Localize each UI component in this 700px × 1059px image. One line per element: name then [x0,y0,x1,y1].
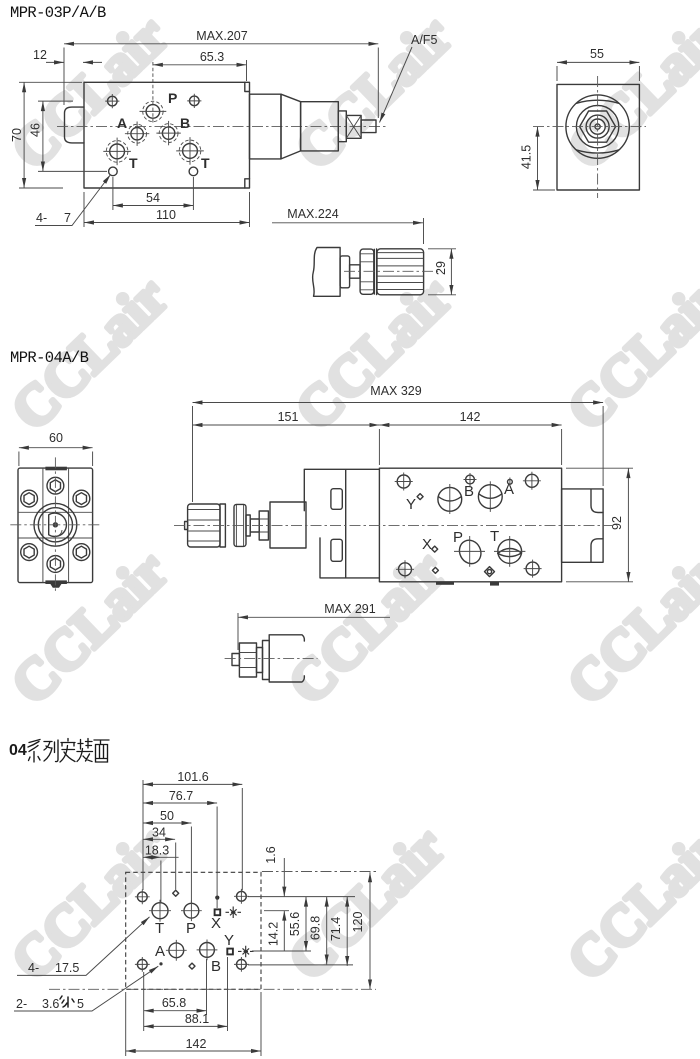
svg-text:18.3: 18.3 [145,844,169,858]
svg-text:60: 60 [49,431,63,445]
svg-text:1.6: 1.6 [264,846,278,863]
svg-text:Y: Y [406,496,416,513]
svg-text:142: 142 [460,410,481,424]
svg-text:92: 92 [610,516,624,530]
svg-text:A: A [117,115,127,131]
svg-text:P: P [168,90,177,106]
svg-text:A/F5: A/F5 [411,33,437,47]
svg-text:151: 151 [278,410,299,424]
svg-text:MPR-03P/A/B: MPR-03P/A/B [10,4,106,22]
svg-text:CCLair: CCLair [556,4,700,181]
svg-text:04: 04 [9,742,27,759]
svg-text:65.8: 65.8 [162,996,186,1010]
svg-text:X: X [211,915,221,932]
svg-text:MPR-04A/B: MPR-04A/B [10,349,89,367]
svg-text:A: A [155,943,165,960]
svg-text:71.4: 71.4 [329,917,343,941]
svg-text:MAX 291: MAX 291 [324,602,375,616]
svg-text:CCLair: CCLair [277,815,457,992]
svg-text:12: 12 [33,48,47,62]
svg-text:55.6: 55.6 [288,912,302,936]
svg-text:29: 29 [434,261,448,275]
svg-text:50: 50 [160,809,174,823]
svg-text:110: 110 [156,208,176,222]
svg-text:76.7: 76.7 [169,789,193,803]
svg-text:55: 55 [590,47,604,61]
svg-text:MAX.207: MAX.207 [196,29,247,43]
svg-text:T: T [129,155,138,171]
svg-text:46: 46 [29,123,43,137]
svg-text:CCLair: CCLair [0,815,180,992]
svg-text:101.6: 101.6 [177,770,208,784]
svg-text:70: 70 [10,128,24,142]
svg-text:5: 5 [77,997,84,1011]
svg-text:65.3: 65.3 [200,50,224,64]
svg-text:Y: Y [224,932,234,949]
svg-text:17.5: 17.5 [55,961,79,975]
svg-text:P: P [453,529,463,546]
svg-text:120: 120 [351,912,365,933]
svg-text:4-: 4- [36,211,47,225]
svg-text:CCLair: CCLair [556,815,700,992]
svg-text:54: 54 [146,191,160,205]
svg-text:CCLair: CCLair [284,4,464,181]
svg-text:3.6: 3.6 [42,997,59,1011]
svg-text:69.8: 69.8 [309,916,323,940]
svg-text:T: T [490,528,499,545]
svg-text:MAX 329: MAX 329 [370,384,421,398]
svg-text:7: 7 [64,211,71,225]
svg-text:B: B [211,958,221,975]
svg-text:T: T [155,920,164,937]
svg-text:CCLair: CCLair [556,539,700,716]
svg-text:T: T [201,155,210,171]
svg-text:MAX.224: MAX.224 [287,207,338,221]
svg-text:14.2: 14.2 [267,922,281,946]
svg-text:B: B [464,483,474,500]
svg-text:CCLair: CCLair [0,539,180,716]
svg-text:41.5: 41.5 [520,145,534,169]
svg-text:P: P [186,920,196,937]
svg-text:CCLair: CCLair [556,265,700,442]
svg-text:2-: 2- [16,997,27,1011]
svg-text:88.1: 88.1 [185,1012,209,1026]
svg-text:CCLair: CCLair [277,539,457,716]
svg-text:34: 34 [152,826,166,840]
svg-text:4-: 4- [28,961,39,975]
svg-text:142: 142 [186,1037,207,1051]
svg-text:B: B [180,115,190,131]
svg-text:X: X [422,536,432,553]
